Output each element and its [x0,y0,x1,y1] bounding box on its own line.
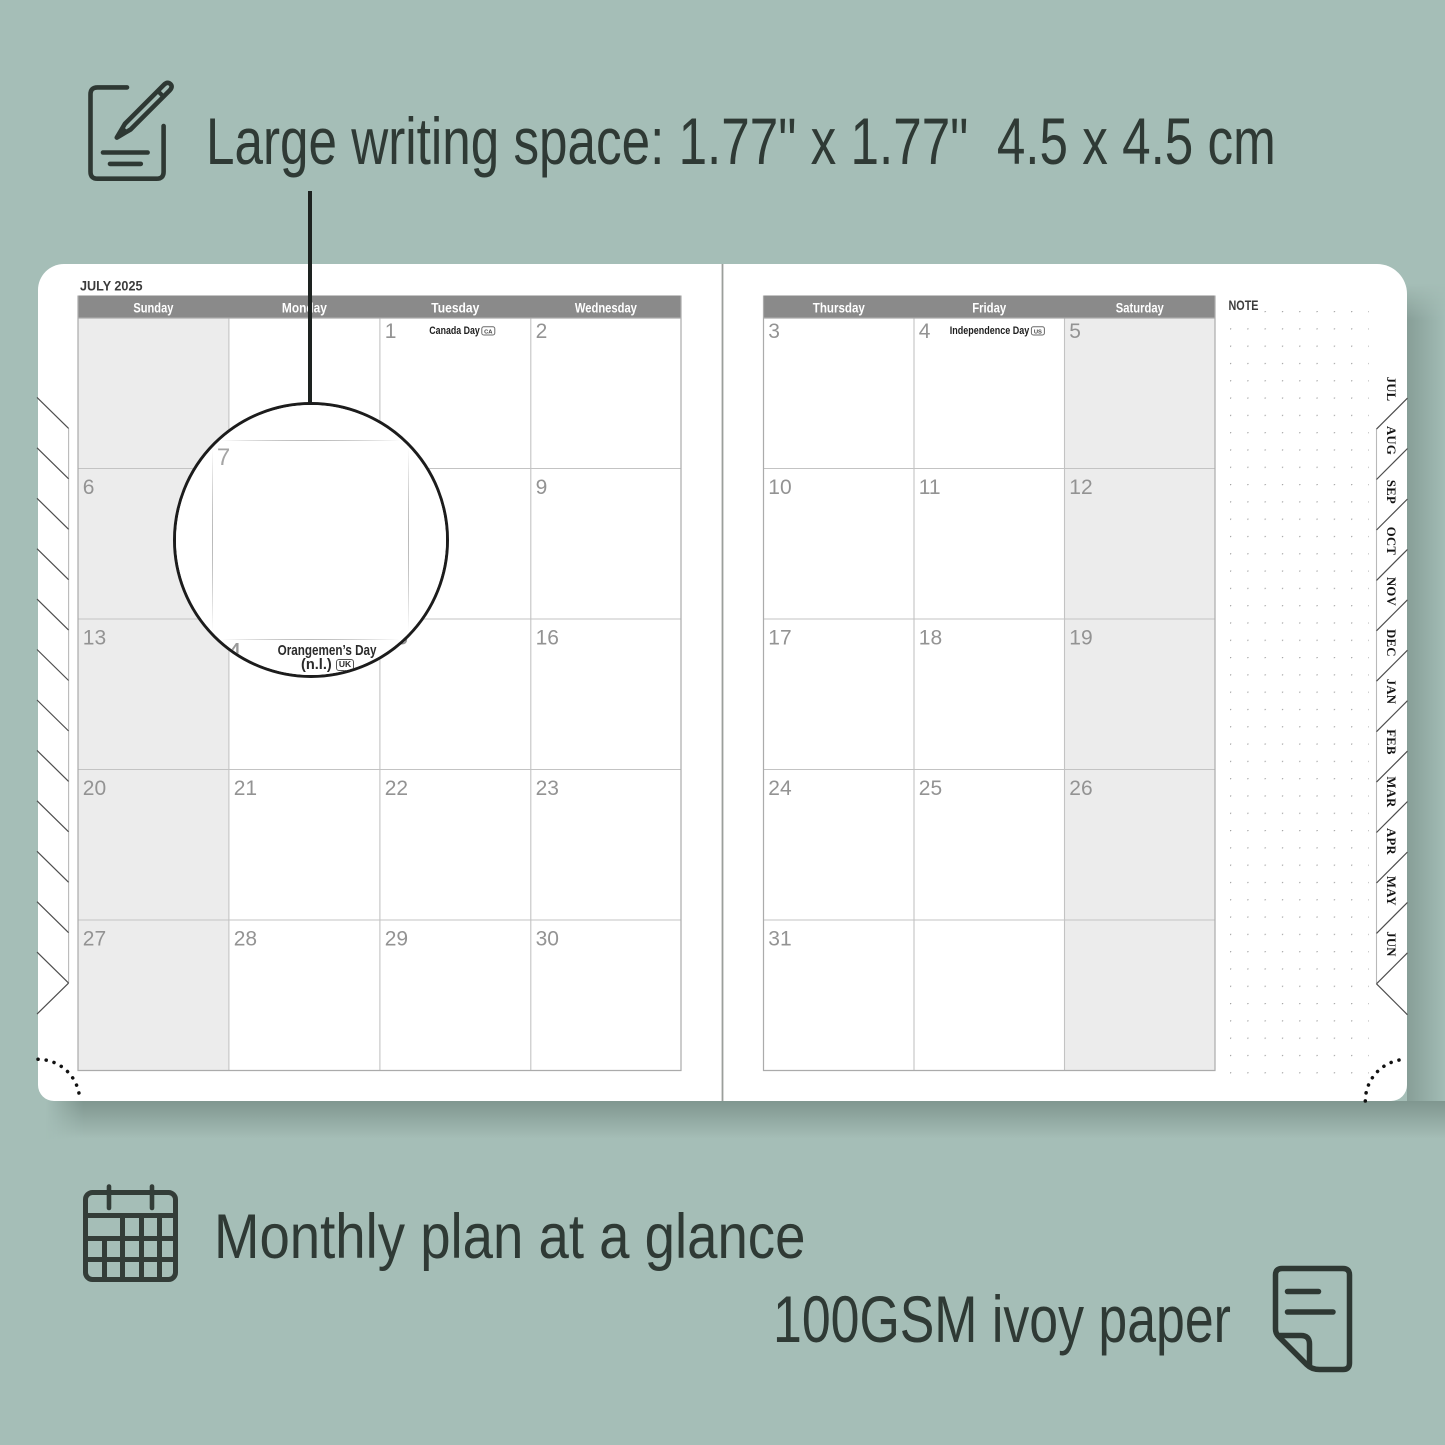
svg-text:5: 5 [1069,320,1081,343]
svg-text:28: 28 [234,928,257,951]
svg-text:6: 6 [83,476,95,499]
svg-text:17: 17 [768,627,791,650]
svg-text:MAY: MAY [1384,876,1398,906]
svg-text:10: 10 [768,476,791,499]
svg-text:MAR: MAR [1384,776,1398,808]
svg-text:FEB: FEB [1384,729,1398,755]
svg-text:DEC: DEC [1384,629,1398,657]
svg-text:12: 12 [1069,476,1092,499]
svg-text:22: 22 [385,777,408,800]
svg-text:US: US [1034,329,1042,335]
svg-text:Sunday: Sunday [133,299,173,315]
svg-text:29: 29 [385,928,408,951]
svg-text:Canada Day: Canada Day [429,325,480,337]
svg-text:23: 23 [536,777,559,800]
svg-text:Thursday: Thursday [813,299,865,315]
svg-text:NOTE: NOTE [1229,298,1259,313]
svg-text:JUN: JUN [1384,931,1398,957]
svg-text:JUL: JUL [1384,377,1398,402]
svg-text:24: 24 [768,777,792,800]
svg-text:1: 1 [385,320,397,343]
svg-text:JAN: JAN [1384,679,1398,705]
svg-text:11: 11 [919,476,941,499]
svg-text:Wednesday: Wednesday [575,299,637,315]
svg-text:18: 18 [919,627,942,650]
svg-text:13: 13 [83,627,106,650]
svg-text:SEP: SEP [1384,480,1398,504]
svg-text:Friday: Friday [972,299,1006,315]
svg-text:19: 19 [1069,627,1092,650]
svg-text:2: 2 [536,320,548,343]
svg-text:APR: APR [1384,828,1398,856]
svg-text:NOV: NOV [1384,577,1398,607]
svg-text:16: 16 [536,627,559,650]
svg-text:4: 4 [919,320,931,343]
svg-text:25: 25 [919,777,942,800]
svg-text:21: 21 [234,777,257,800]
svg-text:3: 3 [768,320,780,343]
svg-text:27: 27 [83,928,106,951]
svg-text:CA: CA [484,329,493,335]
svg-text:20: 20 [83,777,106,800]
svg-text:26: 26 [1069,777,1092,800]
svg-text:OCT: OCT [1384,527,1398,556]
svg-text:Tuesday: Tuesday [431,299,479,315]
svg-text:Independence Day: Independence Day [950,325,1030,337]
svg-text:AUG: AUG [1384,426,1398,455]
svg-text:JULY 2025: JULY 2025 [80,278,143,293]
svg-text:Saturday: Saturday [1116,299,1164,315]
svg-text:9: 9 [536,476,548,499]
svg-text:Monday: Monday [282,299,327,315]
svg-text:30: 30 [536,928,559,951]
svg-text:31: 31 [768,928,791,951]
